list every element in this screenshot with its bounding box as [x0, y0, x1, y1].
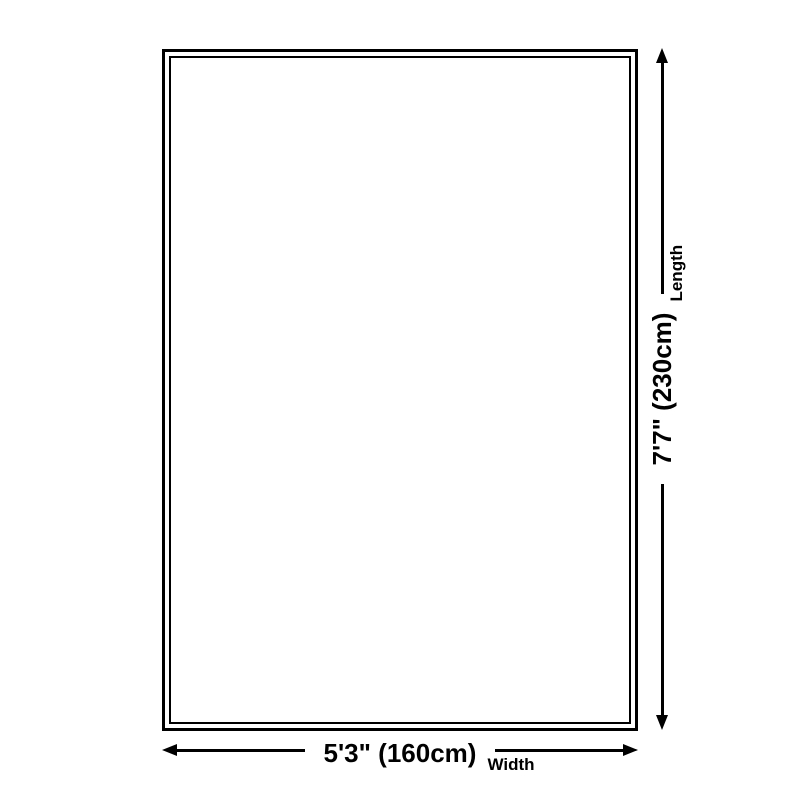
width-dimension-annotation: 5'3" (160cm) Width — [162, 730, 638, 770]
rug-inner-border — [169, 56, 631, 724]
dimension-diagram: 5'3" (160cm) Width 7'7" (230cm) Length — [0, 0, 800, 800]
length-dimension-line-upper: Length — [661, 63, 664, 294]
arrow-down-icon — [656, 715, 668, 730]
length-caption-label: Length — [668, 245, 685, 302]
arrow-left-icon — [162, 744, 177, 756]
width-caption-label: Width — [487, 756, 534, 773]
rug-outline — [162, 49, 638, 731]
arrow-up-icon — [656, 48, 668, 63]
width-dimension-label: 5'3" (160cm) — [324, 740, 477, 766]
length-dimension-label: 7'7" (230cm) — [649, 313, 675, 466]
width-dimension-line-left — [177, 749, 305, 752]
arrow-right-icon — [623, 744, 638, 756]
width-dimension-line-right: Width — [495, 749, 623, 752]
length-dimension-line-lower — [661, 484, 664, 715]
length-dimension-annotation: 7'7" (230cm) Length — [642, 48, 682, 730]
